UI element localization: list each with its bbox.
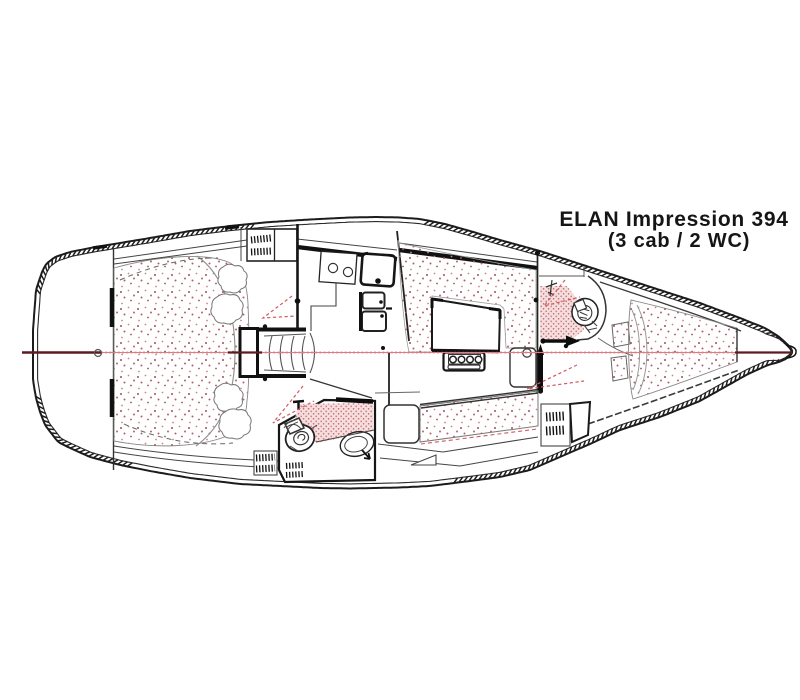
svg-text:(3 cab / 2 WC): (3 cab / 2 WC) — [608, 230, 750, 252]
svg-text:ELAN Impression 394: ELAN Impression 394 — [559, 208, 788, 231]
